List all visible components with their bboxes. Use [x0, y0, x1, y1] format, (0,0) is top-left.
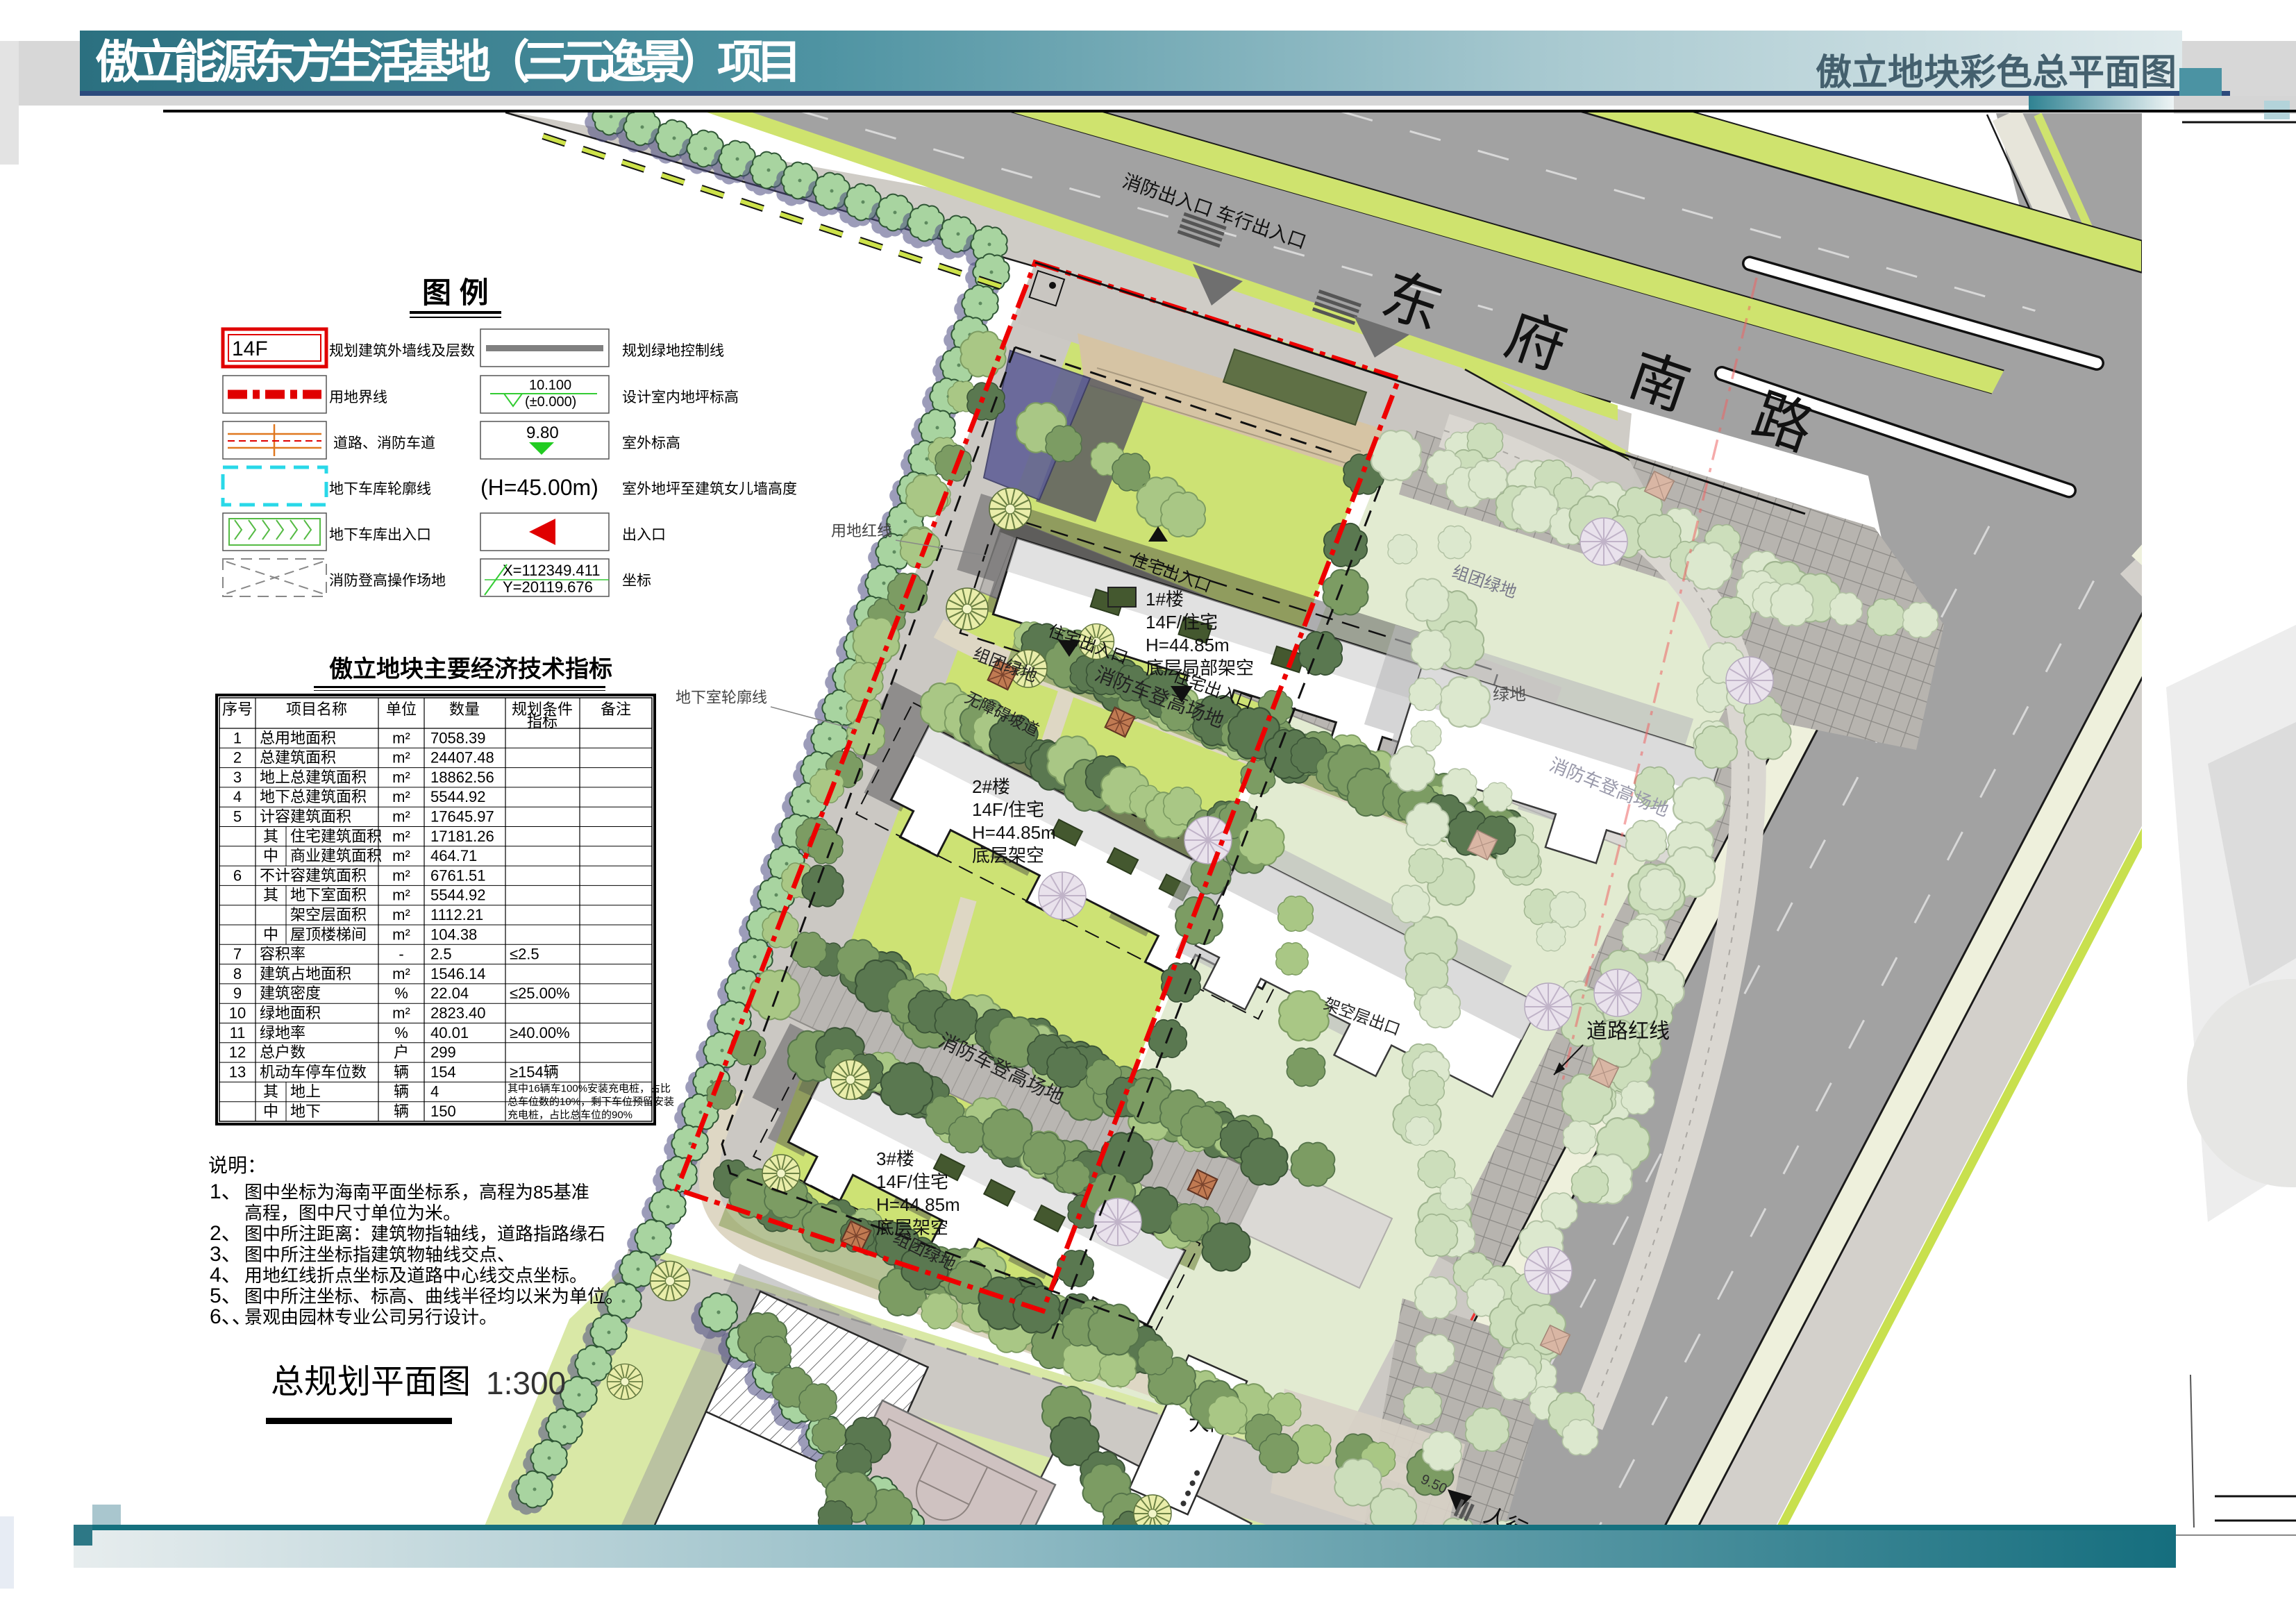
svg-text:总车位数的10%，剩下车位预留安装: 总车位数的10%，剩下车位预留安装	[508, 1096, 674, 1107]
svg-text:2: 2	[233, 749, 242, 767]
svg-text:充电桩，占比总车位的90%: 充电桩，占比总车位的90%	[508, 1109, 632, 1121]
svg-text:用地红线折点坐标及道路中心线交点坐标。: 用地红线折点坐标及道路中心线交点坐标。	[244, 1265, 587, 1286]
svg-text:1: 1	[233, 729, 242, 746]
svg-text:地下车库轮廓线: 地下车库轮廓线	[329, 481, 431, 497]
svg-text:傲立地块主要经济技术指标: 傲立地块主要经济技术指标	[329, 656, 612, 683]
svg-text:说明：: 说明：	[208, 1155, 267, 1176]
svg-text:总用地面积: 总用地面积	[260, 729, 336, 746]
svg-text:12: 12	[229, 1044, 246, 1061]
svg-text:室外标高: 室外标高	[622, 435, 680, 451]
svg-text:地下: 地下	[290, 1103, 321, 1120]
svg-text:总规划平面图: 总规划平面图	[271, 1364, 471, 1400]
svg-text:图 例: 图 例	[422, 276, 489, 309]
svg-text:3#楼: 3#楼	[876, 1148, 914, 1169]
svg-text:m²: m²	[392, 847, 410, 864]
svg-text:容积率: 容积率	[260, 946, 305, 963]
svg-text:建筑密度: 建筑密度	[260, 985, 321, 1002]
svg-text:5: 5	[233, 808, 242, 826]
svg-text:中: 中	[263, 1103, 278, 1120]
svg-text:11: 11	[230, 1024, 246, 1041]
svg-text:图中坐标为海南平面坐标系，高程为85基准: 图中坐标为海南平面坐标系，高程为85基准	[244, 1182, 589, 1203]
svg-text:2、: 2、	[210, 1222, 242, 1245]
svg-text:m²: m²	[392, 887, 410, 904]
svg-text:%: %	[394, 985, 408, 1002]
svg-text:1112.21: 1112.21	[430, 906, 483, 923]
svg-text:5544.92: 5544.92	[430, 788, 486, 805]
svg-text:7: 7	[233, 946, 242, 963]
svg-text:道路红线: 道路红线	[1586, 1020, 1670, 1043]
svg-text:3: 3	[233, 769, 242, 786]
svg-text:计容建筑面积: 计容建筑面积	[260, 808, 351, 826]
svg-text:总建筑面积: 总建筑面积	[260, 749, 336, 767]
svg-text:H=44.85m: H=44.85m	[876, 1194, 960, 1215]
svg-text:299: 299	[430, 1044, 456, 1061]
svg-text:m²: m²	[392, 1005, 410, 1022]
svg-text:m²: m²	[392, 906, 410, 923]
svg-text:图中所注坐标、标高、曲线半径均以米为单位。: 图中所注坐标、标高、曲线半径均以米为单位。	[244, 1286, 623, 1307]
svg-text:17645.97: 17645.97	[430, 808, 494, 826]
svg-text:8: 8	[233, 965, 242, 982]
svg-text:序号: 序号	[222, 701, 253, 718]
svg-text:104.38: 104.38	[430, 926, 477, 943]
svg-text:用地界线: 用地界线	[329, 390, 387, 405]
svg-text:≥40.00%: ≥40.00%	[510, 1024, 570, 1041]
svg-text:Y=20119.676: Y=20119.676	[503, 578, 593, 596]
svg-text:2823.40: 2823.40	[430, 1005, 486, 1022]
svg-text:5544.92: 5544.92	[430, 887, 486, 904]
svg-text:1、: 1、	[210, 1180, 242, 1203]
svg-text:屋顶楼梯间: 屋顶楼梯间	[290, 926, 367, 943]
svg-text:1:300: 1:300	[486, 1365, 566, 1401]
svg-text:2.5: 2.5	[430, 946, 452, 963]
svg-text:规划建筑外墙线及层数: 规划建筑外墙线及层数	[329, 343, 475, 359]
svg-text:中: 中	[263, 926, 278, 943]
svg-text:m²: m²	[392, 788, 410, 805]
svg-text:架空层面积: 架空层面积	[290, 906, 367, 923]
svg-text:14F/住宅: 14F/住宅	[972, 799, 1044, 820]
svg-text:m²: m²	[392, 965, 410, 982]
svg-text:2#楼: 2#楼	[972, 776, 1010, 797]
svg-text:其: 其	[263, 828, 278, 845]
svg-text:设计室内地坪标高: 设计室内地坪标高	[622, 390, 739, 405]
svg-text:(±0.000): (±0.000)	[525, 394, 576, 410]
svg-text:5、: 5、	[210, 1284, 242, 1307]
svg-text:图中所注坐标指建筑物轴线交点、: 图中所注坐标指建筑物轴线交点、	[244, 1244, 515, 1265]
svg-text:道路、消防车道: 道路、消防车道	[333, 435, 435, 451]
svg-text:指标: 指标	[527, 713, 558, 730]
svg-text:规划绿地控制线: 规划绿地控制线	[622, 343, 724, 359]
svg-text:%: %	[394, 1024, 408, 1041]
svg-text:m²: m²	[392, 749, 410, 767]
svg-text:地下车库出入口: 地下车库出入口	[329, 527, 431, 543]
svg-text:室外地坪至建筑女儿墙高度: 室外地坪至建筑女儿墙高度	[622, 481, 797, 497]
svg-text:m²: m²	[392, 729, 410, 746]
svg-text:绿地面积: 绿地面积	[260, 1005, 321, 1022]
svg-text:住宅建筑面积: 住宅建筑面积	[290, 828, 382, 845]
svg-text:m²: m²	[392, 926, 410, 943]
svg-text:18862.56: 18862.56	[430, 769, 494, 786]
svg-text:绿地: 绿地	[1493, 685, 1526, 704]
svg-text:地下室面积: 地下室面积	[290, 887, 367, 904]
svg-text:底层架空: 底层架空	[972, 845, 1044, 866]
svg-text:单位: 单位	[386, 701, 417, 718]
svg-text:9.80: 9.80	[526, 424, 559, 442]
svg-text:14F: 14F	[232, 337, 268, 360]
svg-text:H=44.85m: H=44.85m	[1146, 635, 1230, 655]
svg-text:辆: 辆	[394, 1083, 409, 1100]
svg-text:总户数: 总户数	[260, 1044, 305, 1061]
svg-text:-: -	[399, 946, 403, 963]
svg-text:14F/住宅: 14F/住宅	[876, 1171, 948, 1192]
svg-text:图中所注距离：建筑物指轴线，道路指路缘石: 图中所注距离：建筑物指轴线，道路指路缘石	[244, 1223, 605, 1244]
svg-text:中: 中	[263, 847, 278, 864]
svg-text:10.100: 10.100	[529, 378, 571, 393]
svg-text:不计容建筑面积: 不计容建筑面积	[260, 867, 367, 884]
svg-text:地下总建筑面积: 地下总建筑面积	[260, 788, 367, 805]
svg-text:数量: 数量	[449, 701, 480, 718]
svg-text:户: 户	[394, 1044, 409, 1061]
svg-text:154: 154	[430, 1063, 456, 1080]
svg-text:22.04: 22.04	[430, 985, 469, 1002]
svg-text:地上总建筑面积: 地上总建筑面积	[260, 769, 367, 786]
svg-text:商业建筑面积: 商业建筑面积	[290, 847, 382, 864]
svg-text:机动车停车位数: 机动车停车位数	[260, 1063, 367, 1080]
svg-text:9: 9	[233, 985, 242, 1002]
svg-text:X=112349.411: X=112349.411	[503, 562, 601, 579]
svg-text:14F/住宅: 14F/住宅	[1146, 612, 1218, 633]
svg-text:3、: 3、	[210, 1243, 242, 1266]
svg-text:用地红线: 用地红线	[831, 522, 892, 539]
svg-text:24407.48: 24407.48	[430, 749, 494, 767]
svg-text:m²: m²	[392, 808, 410, 826]
svg-text:消防登高操作场地: 消防登高操作场地	[329, 573, 446, 589]
svg-text:坐标: 坐标	[622, 573, 651, 589]
svg-text:≤2.5: ≤2.5	[510, 946, 539, 963]
svg-text:4: 4	[233, 788, 242, 805]
svg-text:4: 4	[430, 1083, 439, 1100]
svg-text:≥154辆: ≥154辆	[510, 1063, 559, 1080]
svg-text:≤25.00%: ≤25.00%	[510, 985, 570, 1002]
svg-text:备注: 备注	[601, 701, 631, 718]
svg-text:17181.26: 17181.26	[430, 828, 494, 845]
svg-text:13: 13	[229, 1063, 246, 1080]
svg-text:地下室轮廓线: 地下室轮廓线	[676, 689, 767, 706]
svg-text:出入口: 出入口	[622, 527, 666, 543]
svg-text:7058.39: 7058.39	[430, 729, 486, 746]
svg-text:高程，图中尺寸单位为米。: 高程，图中尺寸单位为米。	[244, 1203, 461, 1223]
svg-text:6761.51: 6761.51	[430, 867, 486, 884]
svg-text:4、: 4、	[210, 1264, 242, 1287]
svg-text:辆: 辆	[394, 1063, 409, 1080]
svg-text:40.01: 40.01	[430, 1024, 469, 1041]
svg-text:150: 150	[430, 1103, 456, 1120]
svg-text:傲立能源东方生活基地（三元逸景）项目: 傲立能源东方生活基地（三元逸景）项目	[95, 36, 796, 87]
svg-text:6: 6	[233, 867, 242, 884]
svg-text:其中16辆车100%安装充电桩，占比: 其中16辆车100%安装充电桩，占比	[508, 1082, 671, 1094]
svg-text:m²: m²	[392, 769, 410, 786]
svg-text:其: 其	[263, 1083, 278, 1100]
svg-text:(H=45.00m): (H=45.00m)	[480, 475, 598, 500]
svg-text:绿地率: 绿地率	[260, 1024, 305, 1041]
svg-text:辆: 辆	[394, 1103, 409, 1120]
svg-text:1546.14: 1546.14	[430, 965, 486, 982]
svg-text:m²: m²	[392, 867, 410, 884]
svg-text:其: 其	[263, 887, 278, 904]
svg-text:傲立地块彩色总平面图: 傲立地块彩色总平面图	[1816, 53, 2177, 93]
svg-text:景观由园林专业公司另行设计。: 景观由园林专业公司另行设计。	[244, 1307, 497, 1328]
svg-text:项目名称: 项目名称	[286, 701, 347, 718]
svg-text:H=44.85m: H=44.85m	[972, 822, 1056, 843]
svg-text:10: 10	[229, 1005, 246, 1022]
svg-text:地上: 地上	[290, 1083, 321, 1100]
svg-text:464.71: 464.71	[430, 847, 477, 864]
svg-text:建筑占地面积: 建筑占地面积	[260, 965, 351, 982]
svg-text:m²: m²	[392, 828, 410, 845]
svg-text:1#楼: 1#楼	[1146, 589, 1184, 610]
